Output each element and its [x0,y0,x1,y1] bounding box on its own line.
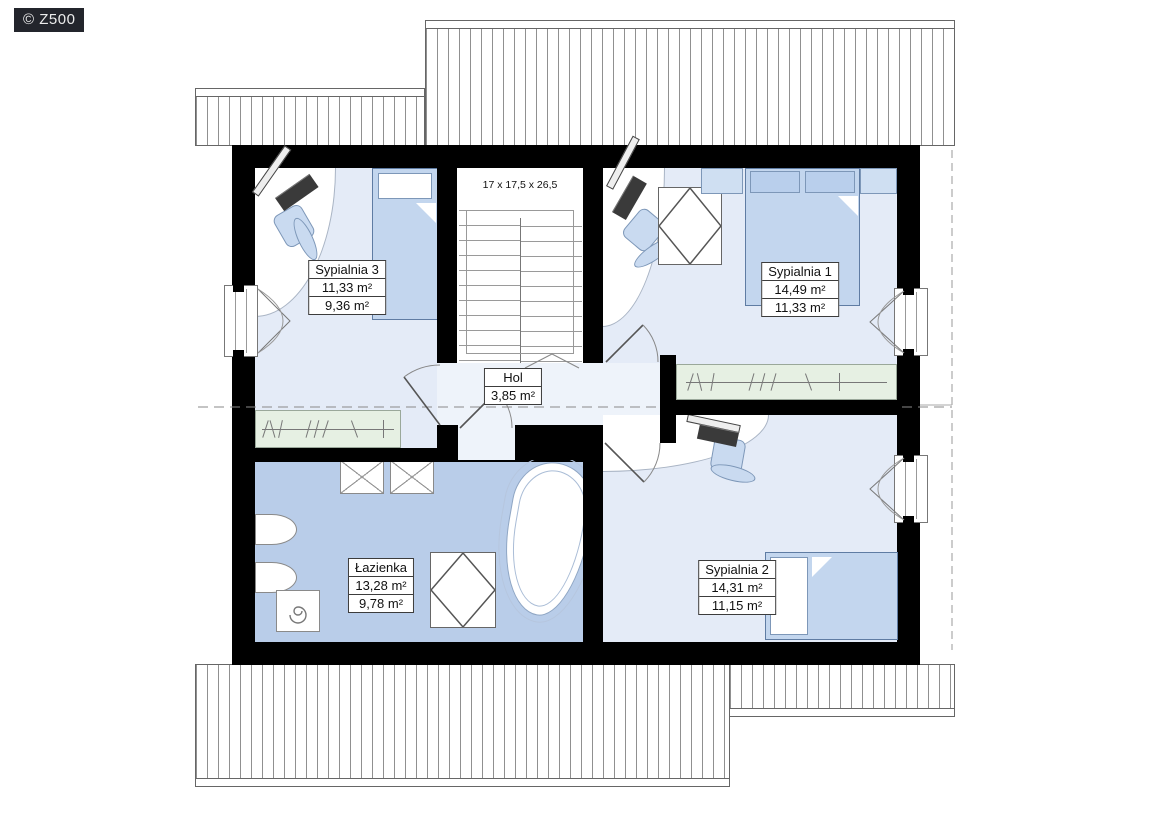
room-area-total: 13,28 m² [349,576,413,594]
wardrobe-sypialnia-3 [255,410,401,448]
room-label-sypialnia-1: Sypialnia 1 14,49 m² 11,33 m² [761,262,839,317]
room-area-total: 11,33 m² [309,278,385,296]
room-label-sypialnia-3: Sypialnia 3 11,33 m² 9,36 m² [308,260,386,315]
wall [660,355,676,443]
window [894,455,928,523]
wall [437,425,458,460]
window-jamb [233,350,244,359]
window [224,285,258,357]
skylight-window [430,552,496,628]
wall [583,145,603,363]
roof-hatching [730,665,954,709]
room-name: Sypialnia 2 [699,561,775,578]
sink [340,460,384,494]
window-pane [905,459,918,519]
sink [390,460,434,494]
wardrobe-rail [262,429,395,430]
wall [583,425,603,642]
pillow [750,171,800,193]
blanket-fold [812,557,832,577]
z500-logo: © Z500 [14,8,84,32]
window-jamb [903,516,914,525]
window-jamb [903,453,914,462]
room-name: Sypialnia 3 [309,261,385,278]
window-jamb [233,283,244,292]
window-pane [905,292,918,352]
room-name: Sypialnia 1 [762,263,838,280]
pillow [805,171,855,193]
room-label-hol: Hol 3,85 m² [484,368,542,405]
window [894,288,928,356]
roof-hatching [426,28,954,145]
wall [232,448,437,462]
pillow [378,173,432,199]
room-name: Hol [485,369,541,386]
roof-hatching [196,96,424,145]
roof-bottom-right [729,664,955,717]
skylight-window [658,187,722,265]
hol-doorway [458,425,515,460]
room-area-total: 14,31 m² [699,578,775,596]
window-pane [235,289,248,353]
room-area-total: 14,49 m² [762,280,838,298]
room-area-usable: 9,78 m² [349,594,413,612]
washing-machine [276,590,320,632]
room-name: Łazienka [349,559,413,576]
blanket-fold [838,196,858,216]
roof-top-right [425,20,955,146]
roof-bottom-left [195,664,730,787]
blanket-fold [416,203,436,223]
wall [437,145,457,363]
room-area-usable: 11,33 m² [762,298,838,316]
roof-top-left [195,88,425,146]
cabinet [860,168,897,194]
wall [660,400,897,415]
window-jamb [903,349,914,358]
room-area-total: 3,85 m² [485,386,541,404]
room-label-sypialnia-2: Sypialnia 2 14,31 m² 11,15 m² [698,560,776,615]
roof-hatching [196,665,729,779]
wardrobe-rail [686,382,888,383]
stairs-dimension-label: 17 x 17,5 x 26,5 [483,179,558,191]
room-area-usable: 9,36 m² [309,296,385,314]
wardrobe-sypialnia-1 [676,364,897,400]
stair-railing [466,210,574,354]
room-area-usable: 11,15 m² [699,596,775,614]
window-jamb [903,286,914,295]
room-label-lazienka: Łazienka 13,28 m² 9,78 m² [348,558,414,613]
cabinet [701,168,743,194]
